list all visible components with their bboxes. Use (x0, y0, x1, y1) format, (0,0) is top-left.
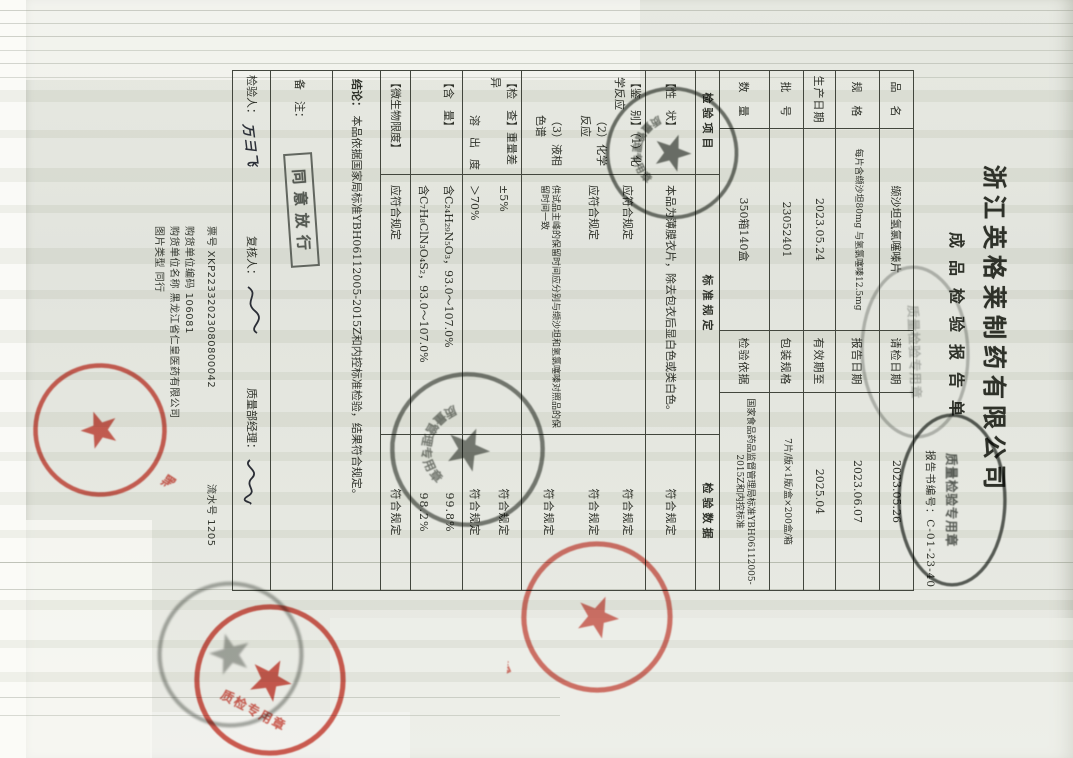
inspection-data: 98.2% (411, 435, 437, 591)
inspection-data: 符合规定 (487, 435, 522, 591)
remark-row: 备 注： 同意放行 (271, 71, 333, 591)
field-label: 生产日期 (804, 71, 836, 129)
serial-number: 流水号 1205 (205, 484, 216, 547)
inspection-standard: 本品为薄膜衣片，除去包衣后显白色或类白色。 (646, 175, 696, 435)
inspection-standard: ±5% (487, 175, 522, 435)
inspection-standard: ＞70% (463, 175, 487, 435)
image-type-line: 图片类型 同行 (151, 226, 166, 590)
ticket-line: 票号 XKP22332023080800042 流水号 1205 (205, 226, 220, 590)
field-value: 23052401 (770, 129, 804, 331)
buyer-name-line: 购货单位名称 黑龙江省仁皇医药有限公司 (166, 226, 181, 590)
inspection-data: 符合规定 (646, 435, 696, 591)
inspection-item: 【微生物限度】 (381, 71, 411, 175)
field-value: 2023.05.24 (804, 129, 836, 331)
inspection-row: 【含 量】 含C₂₄H₂₉N₅O₃，93.0～107.0% 99.8% (437, 71, 463, 591)
conclusion-text: 本品依据国家局标准YBH06112005-2015Z和内控标准检验，结果符合规定… (350, 116, 363, 500)
inspection-standard: 供试品主峰的保留时间应分别与缬沙坦和氢氯噻嗪对照品的保留时间一致 (521, 175, 577, 435)
inspection-item: （2）化学反应 (577, 71, 611, 175)
inspection-standard: 应符合规定 (577, 175, 611, 435)
field-label: 品 名 (880, 71, 914, 129)
field-value: 2025.04 (804, 393, 836, 591)
inspection-report-document: 浙江英格莱制药有限公司 成品检验报告单 报告书编号：C-01-23-40 品 名… (120, 70, 1020, 590)
inspector-signature: 万彐飞 (240, 122, 264, 169)
field-value: 350箱140盒 (720, 129, 770, 331)
field-value: 7片/版×1版/盒×200盒/箱 (770, 393, 804, 591)
inspection-data: 符合规定 (577, 435, 611, 591)
product-info-table: 品 名 缬沙坦氢氯噻嗪片 请检日期 2023.05.26 规 格 每片含缬沙坦8… (719, 70, 914, 591)
field-label: 包装规格 (770, 331, 804, 393)
inspection-row: 【微生物限度】 应符合规定 符合规定 (381, 71, 411, 591)
conclusion-row: 结论： 本品依据国家局标准YBH06112005-2015Z和内控标准检验，结果… (333, 71, 381, 591)
table-row: 品 名 缬沙坦氢氯噻嗪片 请检日期 2023.05.26 (880, 71, 914, 591)
inspection-item: （3）液相色谱 (521, 71, 577, 175)
field-value: 国家食品药品监督管理局标准YBH06112005-2015Z和内控标准 (720, 393, 770, 591)
conclusion-label: 结论： (350, 79, 363, 112)
inspector-label: 检验人： (244, 75, 260, 119)
inspection-standard: 应符合规定 (381, 175, 411, 435)
field-label: 规 格 (836, 71, 880, 129)
inspection-item (411, 71, 437, 175)
report-number-value: C-01-23-40 (924, 519, 936, 588)
column-header: 标准规定 (696, 175, 720, 435)
report-header: 浙江英格莱制药有限公司 成品检验报告单 报告书编号：C-01-23-40 (914, 70, 1020, 590)
report-number-label: 报告书编号： (924, 450, 936, 519)
inspection-item: 【检 查】重量差异 (487, 71, 522, 175)
remark-label: 备 注： (293, 79, 306, 123)
inspection-row: 【鉴 别】（1）化学反应 应符合规定 符合规定 (611, 71, 646, 591)
distributor-footer: 票号 XKP22332023080800042 流水号 1205 购货单位编码 … (151, 130, 220, 590)
inspection-standard: 含C₇H₈ClN₃O₄S₂，93.0～107.0% (411, 175, 437, 435)
column-header: 检验数据 (696, 435, 720, 591)
inspection-data: 符合规定 (521, 435, 577, 591)
inspection-table: 检验项目 标准规定 检验数据 【性 状】 本品为薄膜衣片，除去包衣后显白色或类白… (232, 70, 720, 591)
inspection-data: 99.8% (437, 435, 463, 591)
field-label: 有效期至 (804, 331, 836, 393)
field-label: 报告日期 (836, 331, 880, 393)
inspection-row: （2）化学反应 应符合规定 符合规定 (577, 71, 611, 591)
field-label: 检验依据 (720, 331, 770, 393)
field-value: 每片含缬沙坦80mg 与氢氯噻嗪12.5mg (836, 129, 880, 331)
signature-row: 检验人： 万彐飞 复核人： 质量部经理： (233, 71, 271, 591)
reviewer-label: 复核人： (244, 236, 260, 280)
inspection-data: 符合规定 (463, 435, 487, 591)
reviewer-signature (242, 284, 262, 336)
table-row: 批 号 23052401 包装规格 7片/版×1版/盒×200盒/箱 (770, 71, 804, 591)
signature-cell: 检验人： 万彐飞 复核人： 质量部经理： (233, 71, 271, 591)
signature-line: 检验人： 万彐飞 复核人： 质量部经理： (240, 75, 264, 586)
release-approval-stamp: 同意放行 (283, 152, 320, 268)
field-label: 数 量 (720, 71, 770, 129)
field-value: 缬沙坦氢氯噻嗪片 (880, 129, 914, 331)
conclusion-cell: 结论： 本品依据国家局标准YBH06112005-2015Z和内控标准检验，结果… (333, 71, 381, 591)
table-row: 数 量 350箱140盒 检验依据 国家食品药品监督管理局标准YBH061120… (720, 71, 770, 591)
scanned-report-page: 浙江英格莱制药有限公司 成品检验报告单 报告书编号：C-01-23-40 品 名… (0, 0, 1073, 758)
field-label: 批 号 (770, 71, 804, 129)
inspection-item: 溶 出 度 (463, 71, 487, 175)
buyer-code-line: 购货单位编码 106081 (181, 226, 196, 590)
field-value: 2023.06.07 (836, 393, 880, 591)
inspection-header-row: 检验项目 标准规定 检验数据 (696, 71, 720, 591)
manager-label: 质量部经理： (244, 388, 260, 454)
inspection-row: 【检 查】重量差异 ±5% 符合规定 (487, 71, 522, 591)
company-name: 浙江英格莱制药有限公司 (979, 70, 1014, 590)
inspection-row: 【性 状】 本品为薄膜衣片，除去包衣后显白色或类白色。 符合规定 (646, 71, 696, 591)
inspection-standard: 应符合规定 (611, 175, 646, 435)
table-row: 规 格 每片含缬沙坦80mg 与氢氯噻嗪12.5mg 报告日期 2023.06.… (836, 71, 880, 591)
inspection-item: 【鉴 别】（1）化学反应 (611, 71, 646, 175)
field-value: 2023.05.26 (880, 393, 914, 591)
inspection-item: 【含 量】 (437, 71, 463, 175)
inspection-row: 含C₇H₈ClN₃O₄S₂，93.0～107.0% 98.2% (411, 71, 437, 591)
inspection-item: 【性 状】 (646, 71, 696, 175)
inspection-standard: 含C₂₄H₂₉N₅O₃，93.0～107.0% (437, 175, 463, 435)
table-row: 生产日期 2023.05.24 有效期至 2025.04 (804, 71, 836, 591)
inspection-data: 符合规定 (611, 435, 646, 591)
remark-cell: 备 注： 同意放行 (271, 71, 333, 591)
inspection-row: （3）液相色谱 供试品主峰的保留时间应分别与缬沙坦和氢氯噻嗪对照品的保留时间一致… (521, 71, 577, 591)
column-header: 检验项目 (696, 71, 720, 175)
manager-signature (242, 458, 262, 506)
report-number: 报告书编号：C-01-23-40 (923, 70, 938, 588)
inspection-data: 符合规定 (381, 435, 411, 591)
ticket-number: 票号 XKP22332023080800042 (205, 226, 216, 388)
inspection-row: 溶 出 度 ＞70% 符合规定 (463, 71, 487, 591)
report-title: 成品检验报告单 (946, 70, 970, 590)
field-label: 请检日期 (880, 331, 914, 393)
